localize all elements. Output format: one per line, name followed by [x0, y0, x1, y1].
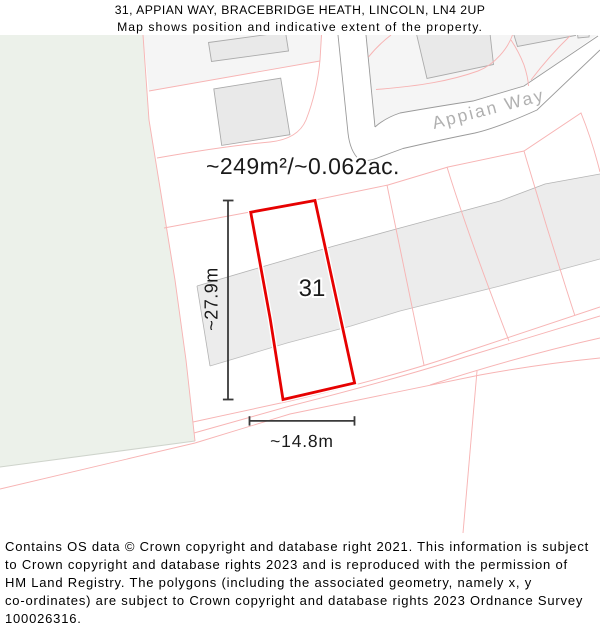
svg-text:~14.8m: ~14.8m [270, 431, 334, 451]
svg-text:~27.9m: ~27.9m [201, 267, 221, 331]
svg-text:~249m²/~0.062ac.: ~249m²/~0.062ac. [206, 153, 400, 179]
svg-text:31: 31 [299, 275, 326, 302]
